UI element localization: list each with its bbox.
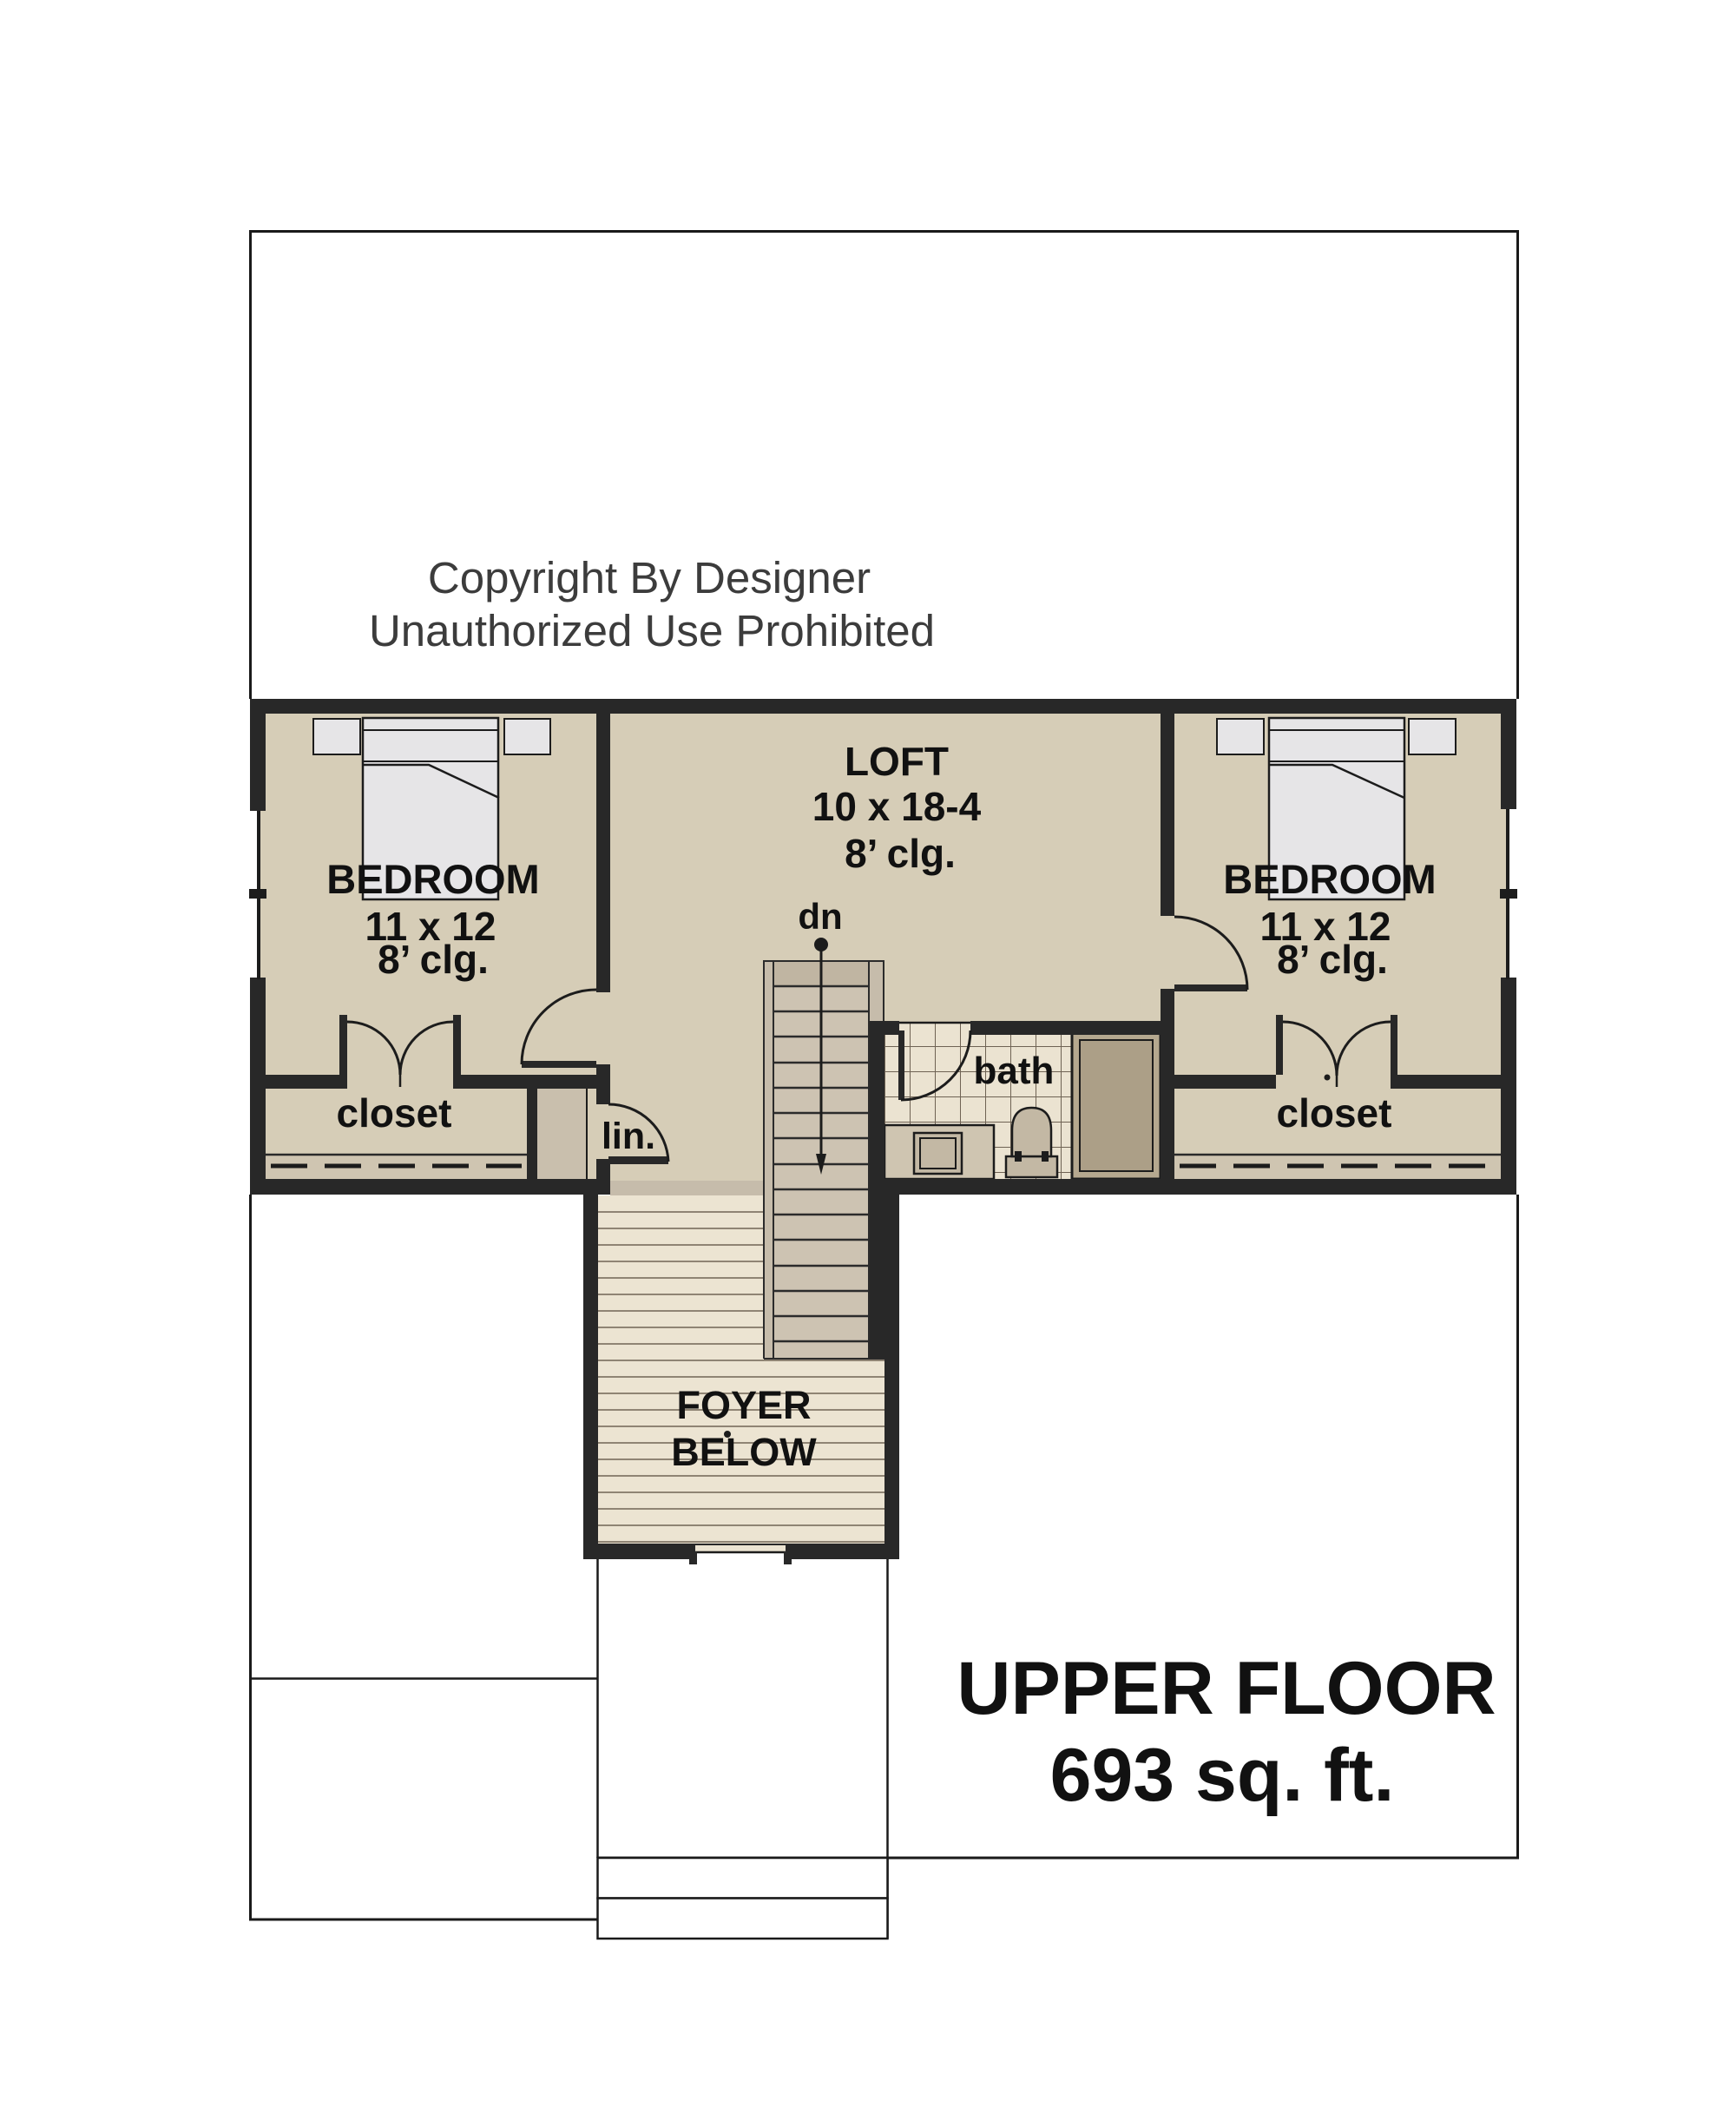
svg-text:closet: closet (1277, 1090, 1392, 1136)
svg-text:693 sq. ft.: 693 sq. ft. (1050, 1734, 1395, 1817)
svg-text:bath: bath (974, 1050, 1055, 1092)
svg-text:BEDROOM: BEDROOM (326, 856, 539, 902)
svg-text:BELOW: BELOW (671, 1430, 817, 1474)
svg-text:UPPER FLOOR: UPPER FLOOR (957, 1647, 1496, 1730)
svg-text:lin.: lin. (602, 1116, 655, 1157)
svg-text:Unauthorized Use Prohibited: Unauthorized Use Prohibited (369, 606, 935, 655)
svg-text:closet: closet (337, 1090, 452, 1136)
svg-text:8’ clg.: 8’ clg. (1277, 937, 1388, 982)
svg-text:BEDROOM: BEDROOM (1223, 856, 1436, 902)
svg-text:Copyright By Designer: Copyright By Designer (428, 553, 871, 602)
svg-text:10 x 18-4: 10 x 18-4 (812, 784, 982, 829)
svg-text:FOYER: FOYER (676, 1383, 811, 1427)
svg-text:8’ clg.: 8’ clg. (378, 937, 489, 982)
svg-text:dn: dn (798, 896, 842, 937)
svg-text:8’ clg.: 8’ clg. (845, 831, 956, 876)
svg-text:LOFT: LOFT (845, 739, 949, 784)
